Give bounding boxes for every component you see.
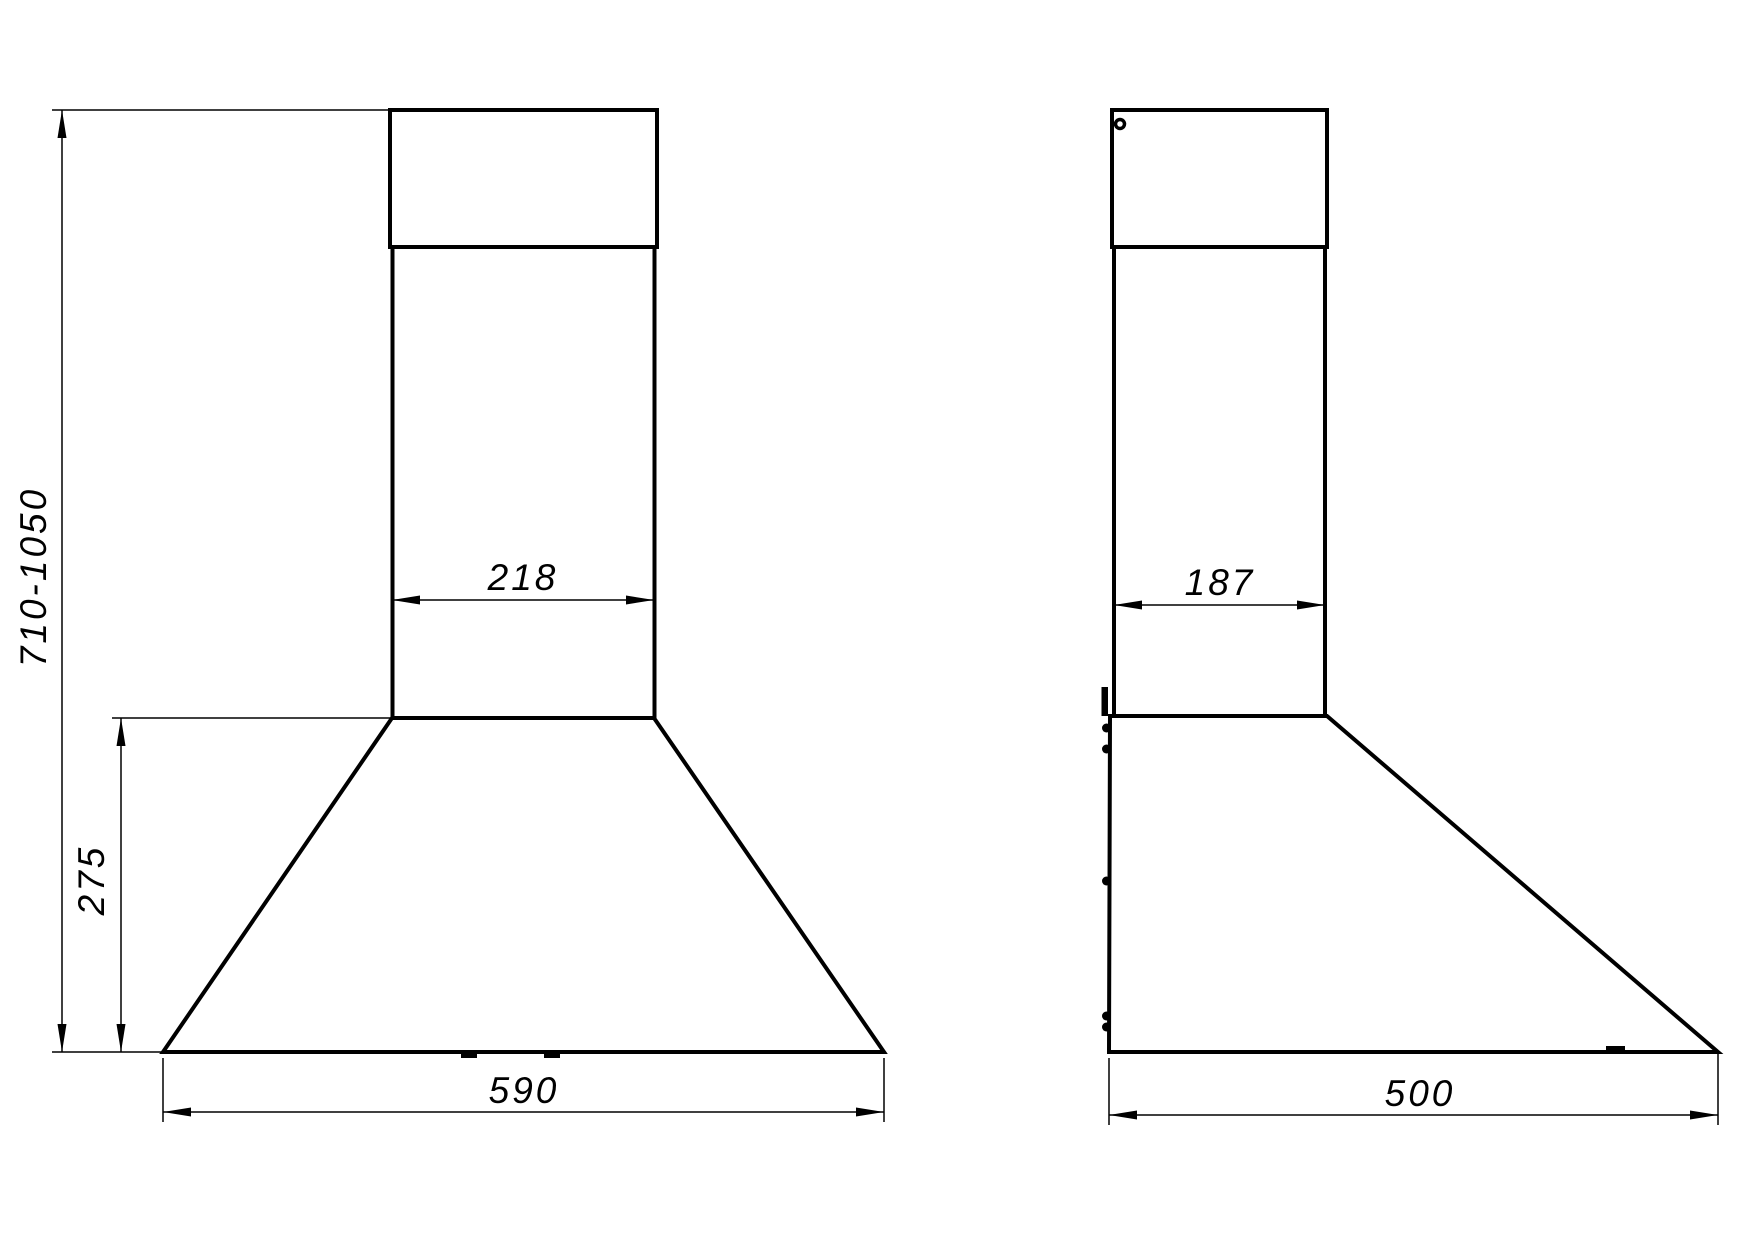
side-underside-detail-tick	[1606, 1046, 1625, 1052]
dim-label-height-range: 710-1050	[13, 487, 54, 667]
wall-fastener-bump	[1102, 877, 1111, 886]
arrowhead-right-icon	[1297, 601, 1325, 610]
wall-fastener-bump	[1102, 724, 1111, 733]
arrowhead-right-icon	[856, 1108, 884, 1117]
arrowhead-left-icon	[163, 1108, 191, 1117]
arrowhead-right-icon	[626, 596, 654, 605]
wall-fastener-bump	[1102, 1012, 1111, 1021]
front-view-dimensions: 710-1050 275 218 590	[13, 110, 884, 1122]
arrowhead-down-icon	[58, 1024, 67, 1052]
arrowhead-right-icon	[1690, 1111, 1718, 1120]
front-chimney-upper-outline	[390, 110, 657, 247]
technical-drawing-canvas: 710-1050 275 218 590	[0, 0, 1755, 1240]
dim-label-body-height: 275	[71, 845, 112, 917]
cooker-hood-dimension-drawing: 710-1050 275 218 590	[0, 0, 1755, 1240]
arrowhead-up-icon	[117, 718, 126, 746]
dim-label-chimney-depth: 187	[1185, 562, 1256, 603]
wall-fastener-bump	[1102, 1023, 1111, 1032]
side-chimney-upper-outline	[1112, 110, 1327, 247]
arrowhead-up-icon	[58, 110, 67, 138]
side-view-dimensions: 187 500	[1109, 562, 1718, 1125]
dim-label-body-depth: 500	[1385, 1073, 1456, 1114]
front-underside-detail-tick-left	[461, 1052, 477, 1058]
side-hood-body-outline	[1109, 716, 1718, 1052]
front-underside-detail-tick-right	[544, 1052, 560, 1058]
arrowhead-left-icon	[392, 596, 420, 605]
front-hood-body-outline	[163, 718, 884, 1052]
wall-bracket-detail	[1102, 687, 1109, 716]
dim-label-body-width: 590	[489, 1070, 560, 1111]
wall-fastener-bump	[1102, 745, 1111, 754]
screw-hole-icon	[1116, 120, 1125, 129]
arrowhead-left-icon	[1114, 601, 1142, 610]
arrowhead-left-icon	[1109, 1111, 1137, 1120]
dim-label-chimney-width: 218	[487, 557, 559, 598]
arrowhead-down-icon	[117, 1024, 126, 1052]
